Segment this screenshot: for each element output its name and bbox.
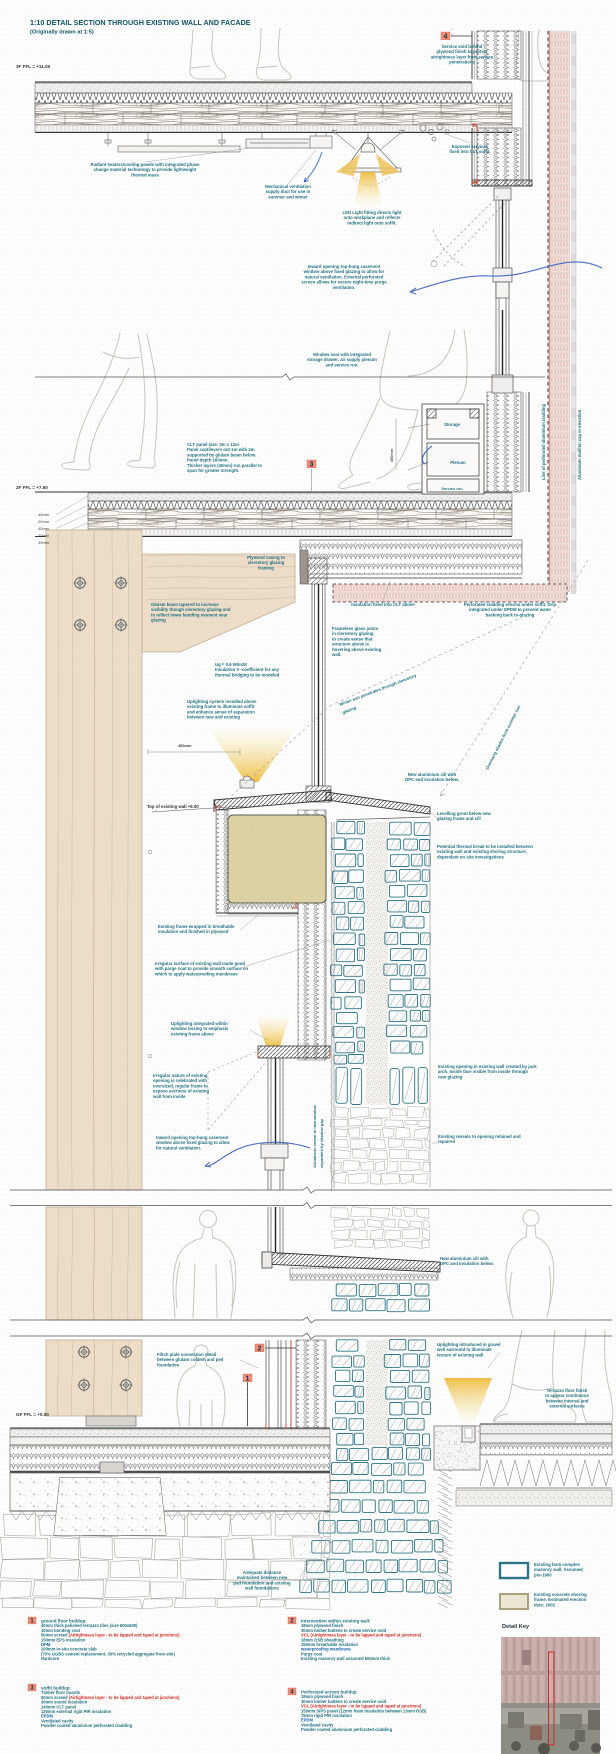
- svg-text:New aluminium cill withDPC and: New aluminium cill withDPC and insulatio…: [440, 1256, 494, 1266]
- svg-text:Powder coated aluminium perfor: Powder coated aluminium perforated cladd…: [41, 1723, 133, 1728]
- svg-text:Storage: Storage: [444, 422, 461, 427]
- svg-text:Existing masonry wall assumed: Existing masonry wall assumed 500mm thic…: [301, 1656, 391, 1661]
- svg-text:LED Light fitting directs ligh: LED Light fitting directs lightonto work…: [343, 210, 403, 225]
- svg-text:GF FFL = +0.00: GF FFL = +0.00: [16, 1412, 49, 1417]
- svg-text:Service run: Service run: [441, 486, 463, 491]
- svg-text:1: 1: [30, 1618, 34, 1625]
- svg-text:400mm: 400mm: [390, 448, 394, 462]
- svg-text:Aluminium reveal to new window: Aluminium reveal to new window: [312, 1104, 317, 1168]
- svg-text:Existing frame wrapped in brea: Existing frame wrapped in breathableinsu…: [158, 924, 235, 934]
- svg-text:3: 3: [30, 1685, 34, 1692]
- svg-text:Plenum: Plenum: [450, 460, 466, 465]
- svg-text:2: 2: [258, 1345, 262, 1352]
- svg-text:450mm: 450mm: [178, 743, 192, 748]
- svg-text:Irregular surface of existi: Irregular surface of existing wall made …: [154, 961, 248, 976]
- svg-text:Powder coated aluminium perfor: Powder coated aluminium perforated cladd…: [301, 1727, 393, 1732]
- svg-text:separated by shadow gap: separated by shadow gap: [319, 1119, 324, 1168]
- svg-text:(Originally drawn at 1:5): (Originally drawn at 1:5): [30, 30, 94, 36]
- svg-text:Top of existing wall +6.00: Top of existing wall +6.00: [147, 804, 199, 809]
- svg-text:(70% GGBS cement replacement,: (70% GGBS cement replacement, 30% recycl…: [41, 1651, 175, 1656]
- svg-text:Hardcore: Hardcore: [41, 1656, 60, 1661]
- svg-text:Aluminium mullion cap in eleva: Aluminium mullion cap in elevation: [577, 409, 582, 480]
- svg-text:40mm: 40mm: [38, 526, 50, 531]
- svg-text:1:10 DETAIL SECTION THROUGH EX: 1:10 DETAIL SECTION THROUGH EXISTING WAL…: [30, 18, 251, 27]
- svg-text:40mm: 40mm: [38, 540, 50, 545]
- svg-text:2: 2: [290, 1618, 294, 1625]
- svg-text:1: 1: [246, 1375, 250, 1382]
- svg-text:Mechanical ventilationsupply d: Mechanical ventilationsupply duct for us…: [265, 184, 311, 199]
- svg-text:40mm: 40mm: [38, 512, 50, 517]
- svg-text:4: 4: [444, 33, 448, 40]
- svg-text:3: 3: [310, 461, 314, 468]
- svg-text:Exposed servicesfixed into: Exposed servicesfixed into CLT soffit.: [449, 144, 490, 154]
- svg-text:4: 4: [290, 1689, 294, 1696]
- svg-text:Detail Key: Detail Key: [502, 1624, 530, 1630]
- svg-text:Terrazzo floor finishto appear: Terrazzo floor finishto appear continuou…: [545, 1388, 589, 1409]
- svg-text:Insulation fixed into CLT abov: Insulation fixed into CLT above: [351, 602, 415, 607]
- svg-text:2F FFL = +7.60: 2F FFL = +7.60: [16, 485, 48, 490]
- svg-text:3F FFL = +11.00: 3F FFL = +11.00: [16, 64, 51, 69]
- svg-text:20mm: 20mm: [38, 519, 50, 524]
- svg-text:Line of perforated aluminium c: Line of perforated aluminium cladding: [541, 403, 546, 480]
- svg-text:New aluminium cill withDPC and: New aluminium cill withDPC and insulatio…: [405, 772, 459, 782]
- svg-text:20mm: 20mm: [38, 533, 50, 538]
